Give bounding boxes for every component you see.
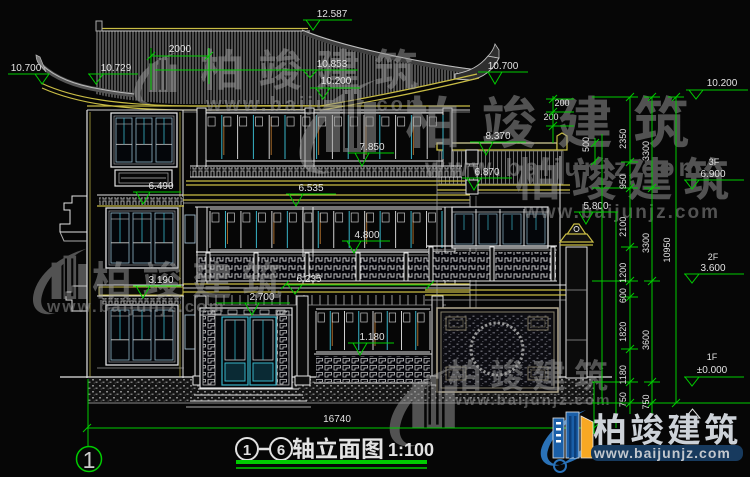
svg-text:10.700: 10.700 xyxy=(11,63,42,74)
svg-text:10.853: 10.853 xyxy=(317,59,348,70)
svg-text:2000: 2000 xyxy=(169,44,192,55)
svg-text:www.baijunjz.com: www.baijunjz.com xyxy=(205,94,427,116)
svg-text:5.800: 5.800 xyxy=(583,201,608,212)
svg-text:www.baijunjz.com: www.baijunjz.com xyxy=(46,297,226,316)
svg-text:750: 750 xyxy=(641,394,651,409)
svg-text:3600: 3600 xyxy=(641,330,651,350)
svg-text:10.200: 10.200 xyxy=(321,76,352,87)
svg-text:3F: 3F xyxy=(709,157,720,167)
svg-text:www.baijunjz.com: www.baijunjz.com xyxy=(593,445,731,461)
svg-text:10950: 10950 xyxy=(662,237,672,262)
svg-text:2350: 2350 xyxy=(618,129,628,149)
svg-text:1820: 1820 xyxy=(618,322,628,342)
svg-text:12.587: 12.587 xyxy=(317,9,348,20)
svg-text:6: 6 xyxy=(277,442,285,459)
svg-text:3300: 3300 xyxy=(641,141,651,161)
svg-text:±0.000: ±0.000 xyxy=(697,365,728,376)
svg-text:1: 1 xyxy=(243,442,251,459)
svg-text:6.235: 6.235 xyxy=(296,274,321,285)
svg-text:16740: 16740 xyxy=(323,414,351,425)
svg-text:10.700: 10.700 xyxy=(488,61,519,72)
svg-text:600: 600 xyxy=(618,288,628,303)
svg-text:8.370: 8.370 xyxy=(485,131,510,142)
svg-text:6.490: 6.490 xyxy=(148,181,173,192)
svg-text:3.190: 3.190 xyxy=(148,275,173,286)
svg-text:3.600: 3.600 xyxy=(700,263,725,274)
svg-text:6.900: 6.900 xyxy=(700,169,725,180)
svg-text:1.180: 1.180 xyxy=(359,332,384,343)
svg-text:10.729: 10.729 xyxy=(101,63,132,74)
svg-text:1:100: 1:100 xyxy=(388,440,434,460)
svg-text:500: 500 xyxy=(581,137,591,152)
svg-text:4.800: 4.800 xyxy=(354,230,379,241)
svg-text:6.870: 6.870 xyxy=(474,167,499,178)
svg-text:1200: 1200 xyxy=(618,263,628,283)
svg-text:950: 950 xyxy=(618,174,628,189)
svg-text:750: 750 xyxy=(618,392,628,407)
svg-text:1180: 1180 xyxy=(618,365,628,384)
svg-text:2F: 2F xyxy=(708,252,719,262)
svg-text:3300: 3300 xyxy=(641,233,651,253)
svg-text:6.535: 6.535 xyxy=(298,183,323,194)
svg-text:7.850: 7.850 xyxy=(359,142,384,153)
svg-text:2.700: 2.700 xyxy=(249,292,274,303)
svg-text:1F: 1F xyxy=(707,352,718,362)
svg-text:2100: 2100 xyxy=(618,217,628,237)
svg-text:1: 1 xyxy=(83,447,96,473)
svg-text:10.200: 10.200 xyxy=(707,78,738,89)
svg-text:www.baijunjz.com: www.baijunjz.com xyxy=(449,392,611,409)
